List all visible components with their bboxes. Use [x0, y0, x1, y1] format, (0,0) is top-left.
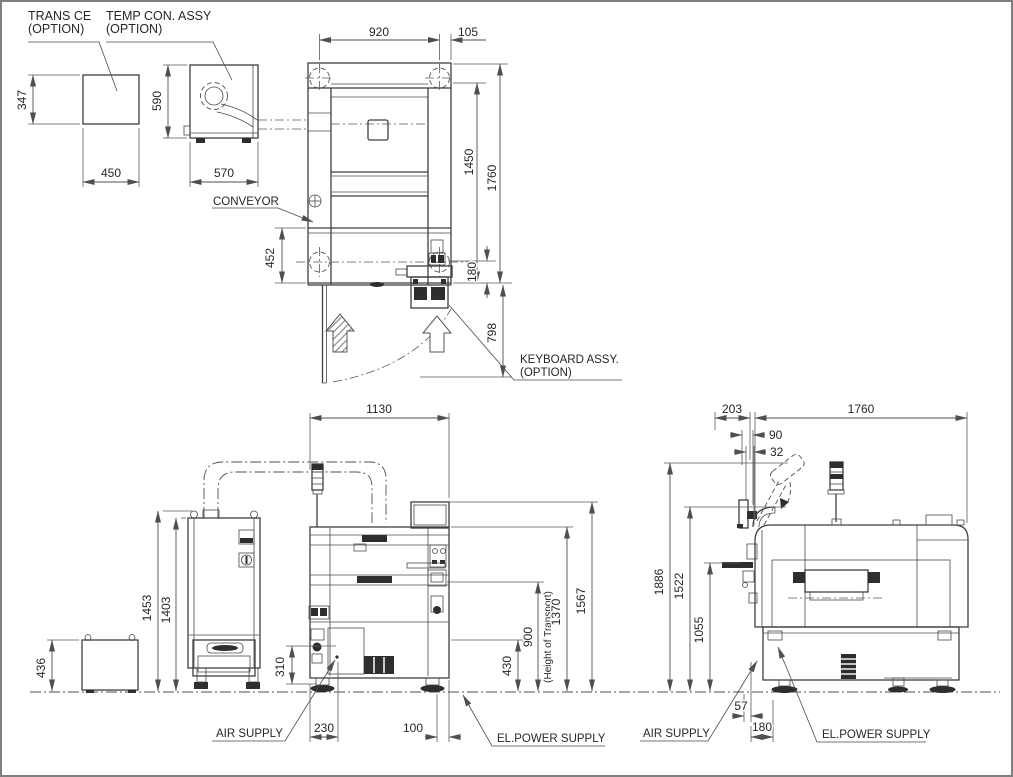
dim-900: 900 [521, 627, 535, 647]
label-el-power-side: EL.POWER SUPPLY [822, 729, 931, 741]
gauge-icon [433, 606, 441, 614]
side-foot-mid [888, 687, 908, 693]
dim-452: 452 [263, 248, 277, 268]
front-view-group: 436 1453 14 [34, 402, 606, 746]
label-keyboard-option: (OPTION) [520, 367, 572, 379]
temp-con-box [190, 65, 258, 138]
trans-ce-box [83, 75, 139, 124]
flow-arrow-outline-icon [423, 316, 451, 352]
upper-conveyor-slot [362, 535, 387, 542]
label-keyboard-assy: KEYBOARD ASSY. [520, 354, 619, 366]
cabinet-front [188, 510, 260, 689]
side-foot-rear [930, 686, 956, 693]
temp-con-fan-icon [205, 87, 223, 105]
dim-105: 105 [458, 25, 478, 39]
machine-foot-left [311, 685, 335, 692]
dim-203: 203 [722, 402, 742, 416]
dim-230: 230 [314, 721, 334, 735]
dim-57: 57 [734, 699, 748, 713]
dim-1055: 1055 [692, 616, 706, 643]
signal-tower-front [312, 464, 323, 527]
vent-grille-front [364, 656, 394, 674]
dim-32: 32 [770, 445, 784, 459]
machine-side-base [763, 627, 959, 680]
top-view-group: 920 105 1450 1760 180 798 452 CONVEYOR K… [212, 25, 622, 383]
signal-tower-side [828, 462, 844, 525]
dim-90: 90 [769, 428, 783, 442]
small-option-box [82, 635, 138, 694]
dim-1567: 1567 [574, 587, 588, 614]
temp-con-option-label: (OPTION) [106, 22, 162, 36]
technical-drawing-canvas: TRANS CE (OPTION) 347 450 TEMP CON. ASSY… [0, 0, 1013, 777]
top-view-head [368, 120, 388, 140]
hose-duct-outer [204, 462, 386, 523]
transport-conveyor-slot [357, 576, 392, 583]
side-foot-front [772, 686, 798, 693]
dim-1403: 1403 [159, 596, 173, 623]
dim-920: 920 [369, 25, 389, 39]
dim-436: 436 [34, 658, 48, 678]
trans-ce-option-label: (OPTION) [28, 22, 84, 36]
label-air-supply-side: AIR SUPPLY [643, 728, 710, 740]
dim-1370: 1370 [549, 598, 563, 625]
dim-180-side: 180 [752, 720, 772, 734]
dim-570: 570 [214, 166, 234, 180]
label-air-supply-front: AIR SUPPLY [216, 728, 283, 740]
dim-450: 450 [101, 166, 121, 180]
conveyor-leader-line [212, 208, 313, 222]
trans-ce-leader-line [28, 42, 117, 91]
dim-590: 590 [150, 91, 164, 111]
temp-con-label: TEMP CON. ASSY [106, 9, 212, 23]
flow-arrow-hatched-icon [326, 314, 354, 352]
vent-grille-side [841, 654, 856, 679]
side-monitor [737, 500, 775, 528]
dim-1450: 1450 [462, 148, 476, 175]
side-view-group: 203 1760 90 32 1886 1522 1055 57 [640, 402, 968, 742]
temp-con-leader-line [106, 42, 232, 80]
keyboard-assembly-top [396, 240, 452, 308]
dim-1522: 1522 [672, 572, 686, 599]
dim-310: 310 [273, 657, 287, 677]
dim-430: 430 [500, 656, 514, 676]
dim-1453: 1453 [140, 594, 154, 621]
air-regulator [311, 629, 324, 640]
dim-798: 798 [485, 323, 499, 343]
post-circles [296, 64, 470, 277]
stencil-plate [788, 570, 882, 600]
dim-1760-top: 1760 [485, 164, 499, 191]
dim-1886: 1886 [652, 568, 666, 595]
dim-180-top: 180 [465, 262, 479, 282]
hose-duct-inner [218, 472, 372, 523]
dim-347: 347 [15, 90, 29, 110]
dim-100: 100 [403, 721, 423, 735]
dim-1760-side: 1760 [848, 402, 875, 416]
label-conveyor: CONVEYOR [213, 196, 279, 208]
base-door [328, 628, 364, 674]
label-el-power-front: EL.POWER SUPPLY [497, 733, 606, 745]
machine-foot-right [421, 685, 445, 692]
front-handle [370, 282, 384, 287]
machine-dimension-drawing: TRANS CE (OPTION) 347 450 TEMP CON. ASSY… [0, 0, 1013, 777]
trans-ce-label: TRANS CE [28, 9, 91, 23]
machine-front [309, 502, 449, 692]
front-monitor [411, 502, 449, 528]
dim-1130: 1130 [366, 402, 392, 416]
option-units-group: TRANS CE (OPTION) 347 450 TEMP CON. ASSY… [15, 9, 307, 187]
